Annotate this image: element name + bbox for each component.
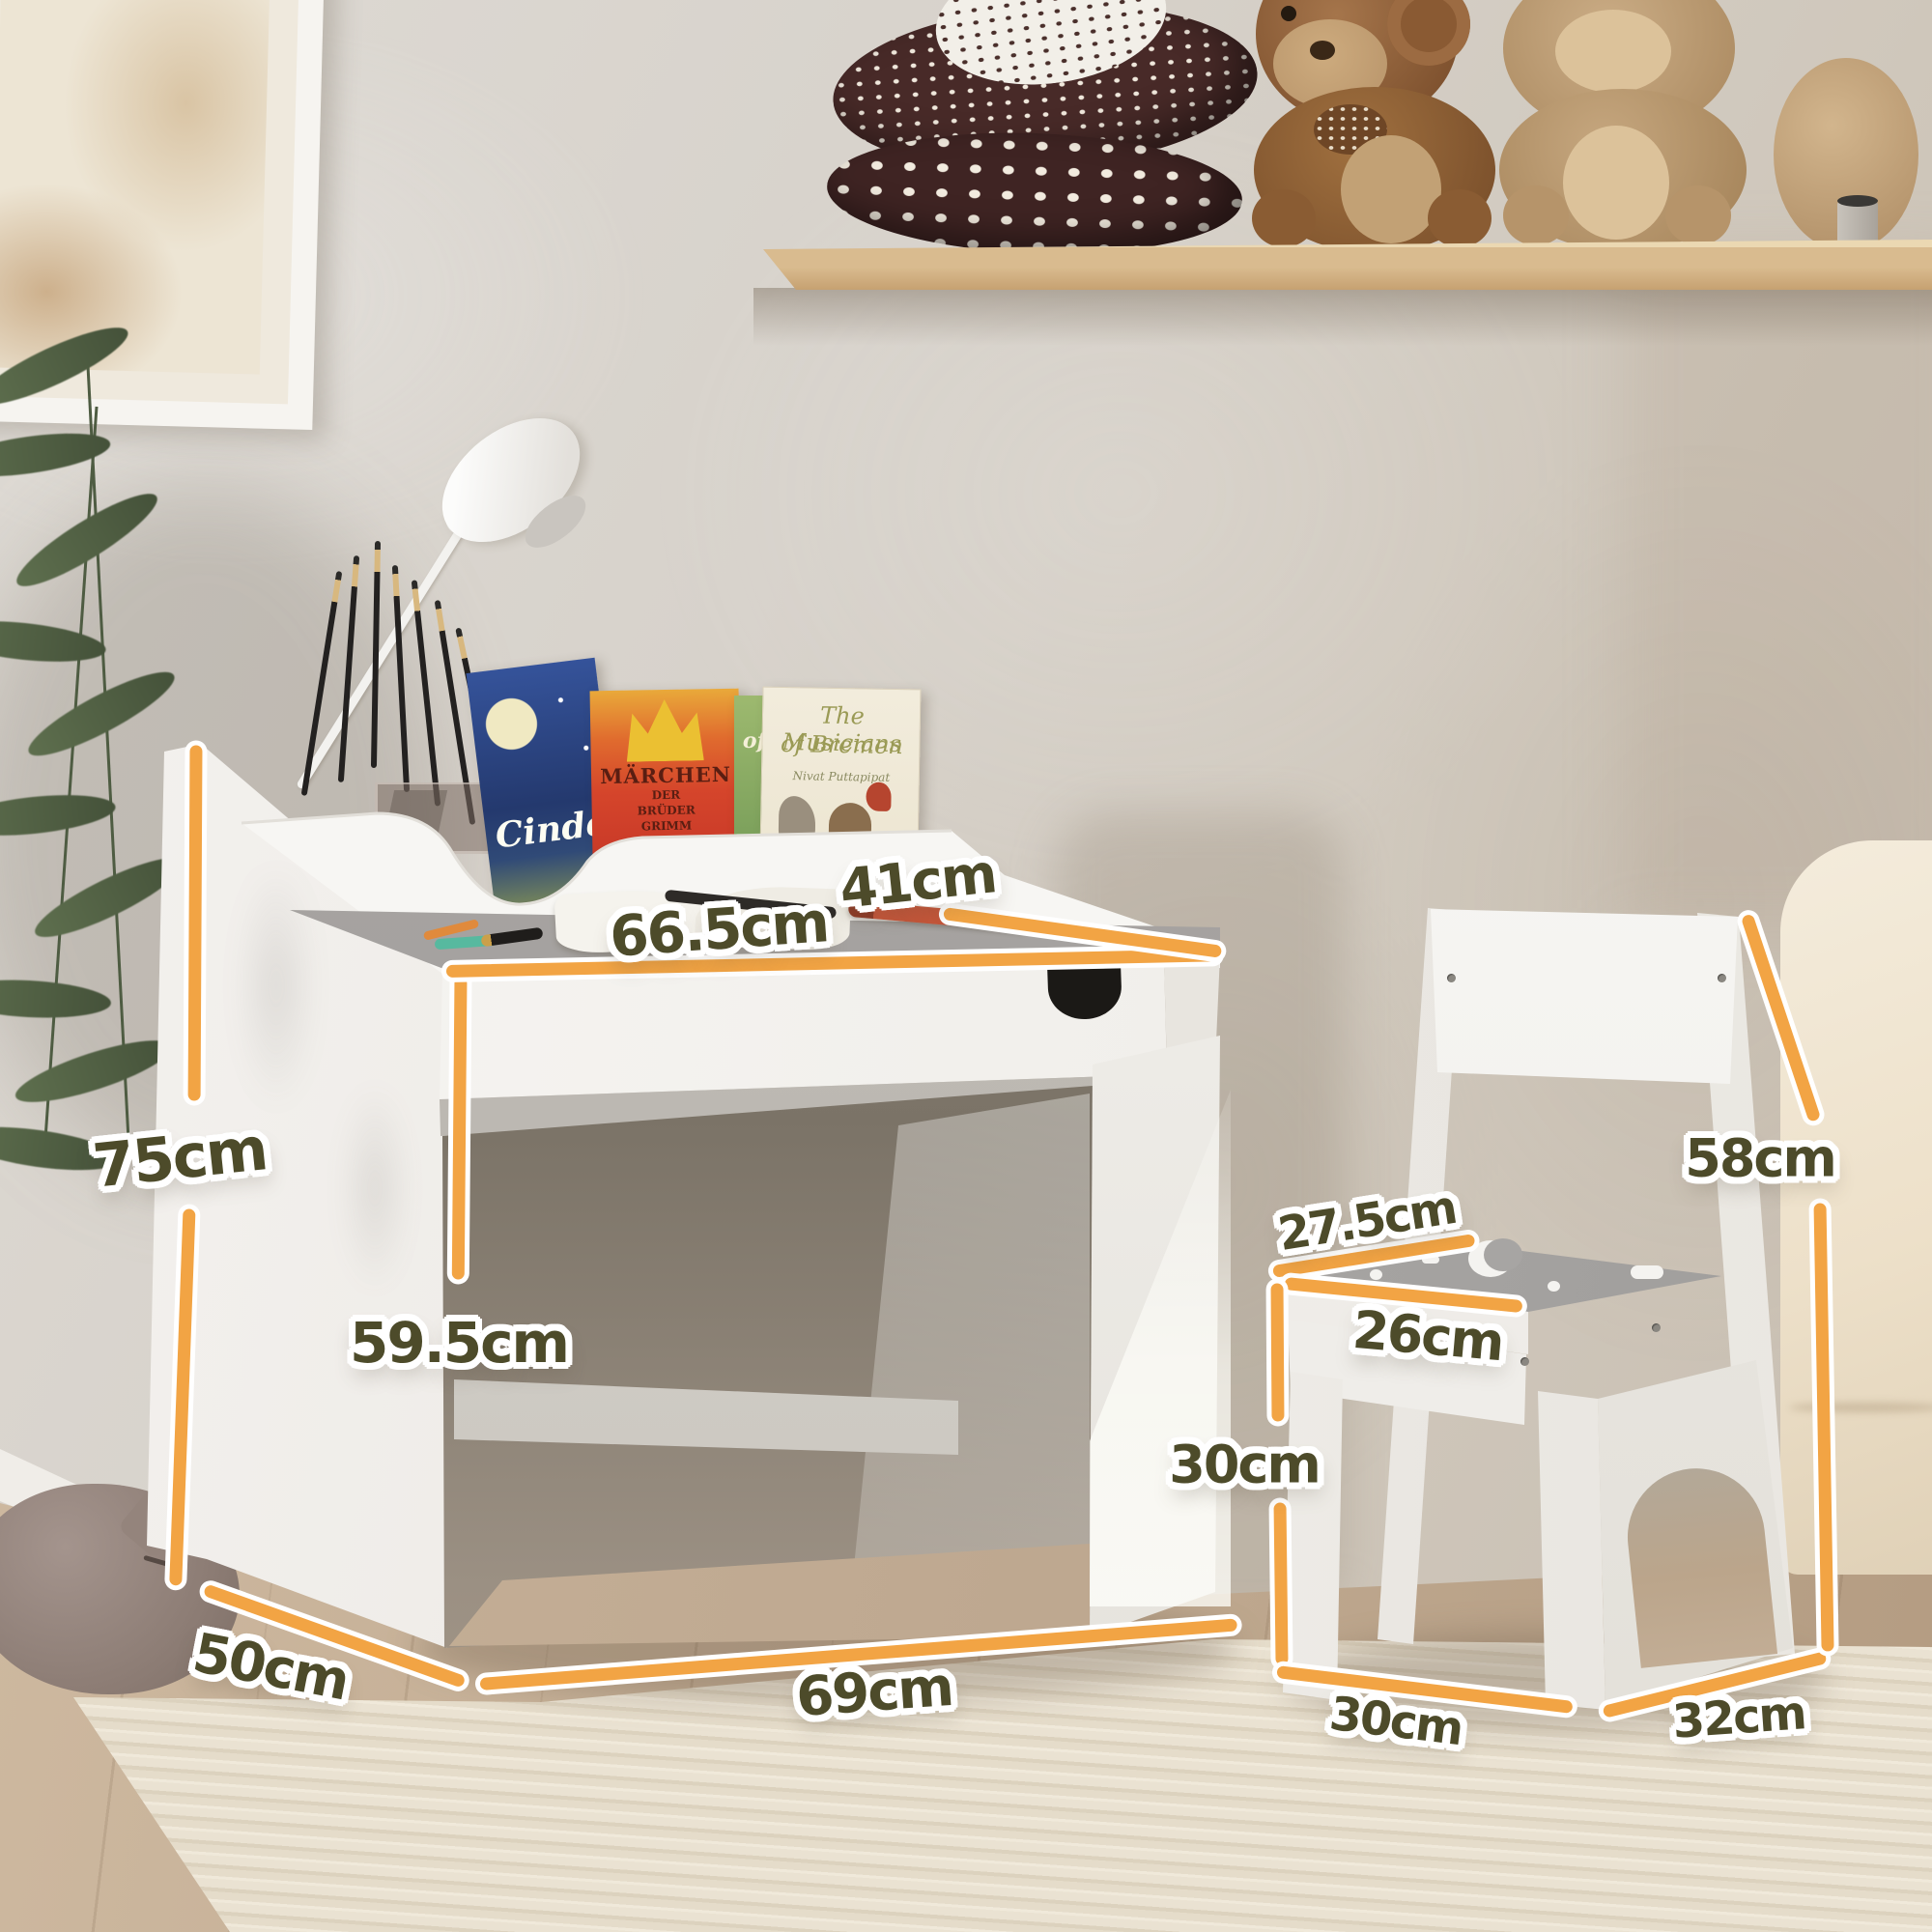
line-30cm-height-upper [1271,1283,1285,1421]
label-59-5cm: 59.5cm [350,1310,568,1376]
seat-cloud-cutout [1631,1265,1663,1279]
crown-illustration [626,698,704,761]
seat-moon-crescent [1484,1238,1522,1271]
screw [1520,1357,1529,1366]
screw [1447,974,1456,982]
label-30cm-height: 30cm [1169,1435,1319,1495]
wall-shadow-right [1623,251,1932,927]
label-32cm: 32cm [1671,1686,1807,1748]
cushion-crease [1789,1403,1932,1412]
line-75cm-upper [188,745,203,1100]
screw [1652,1323,1661,1332]
sofa-cushion [1780,840,1932,1575]
book-author: Nivat Puttapipat [762,769,921,785]
line-30cm-height-lower [1274,1502,1289,1664]
book-title-line: of Bremen [762,730,921,760]
product-dimension-photo: Cinde MÄRCHEN DER BRÜDER GRIMM of The Mu… [0,0,1932,1932]
label-58cm: 58cm [1685,1128,1834,1189]
frame-artwork [0,0,270,375]
screw [1718,974,1726,982]
line-59-5cm [452,977,468,1279]
book-title-line: MÄRCHEN [591,762,740,789]
seat-dot-cutout [1548,1281,1560,1292]
seat-dot-cutout [1370,1269,1382,1280]
seat-dash-cutout [1422,1256,1439,1264]
label-26cm: 26cm [1350,1299,1505,1373]
label-69cm: 69cm [794,1656,954,1729]
book-title-line: DER [591,787,740,804]
shelf-shadow [753,288,1932,346]
